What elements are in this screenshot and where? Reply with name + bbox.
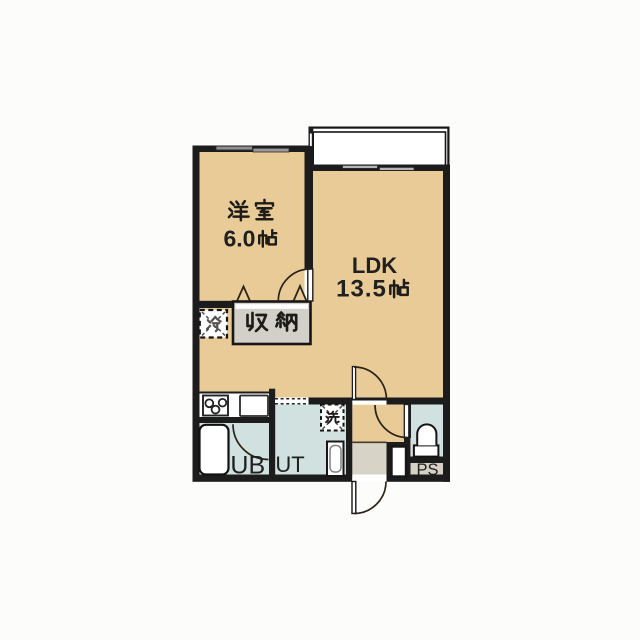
svg-text:13.5: 13.5 <box>336 276 387 303</box>
svg-text:UB: UB <box>230 452 265 480</box>
svg-text:PS: PS <box>416 461 438 479</box>
svg-text:LDK: LDK <box>352 253 397 278</box>
svg-text:6.0: 6.0 <box>224 226 256 252</box>
svg-text:UT: UT <box>275 452 304 477</box>
